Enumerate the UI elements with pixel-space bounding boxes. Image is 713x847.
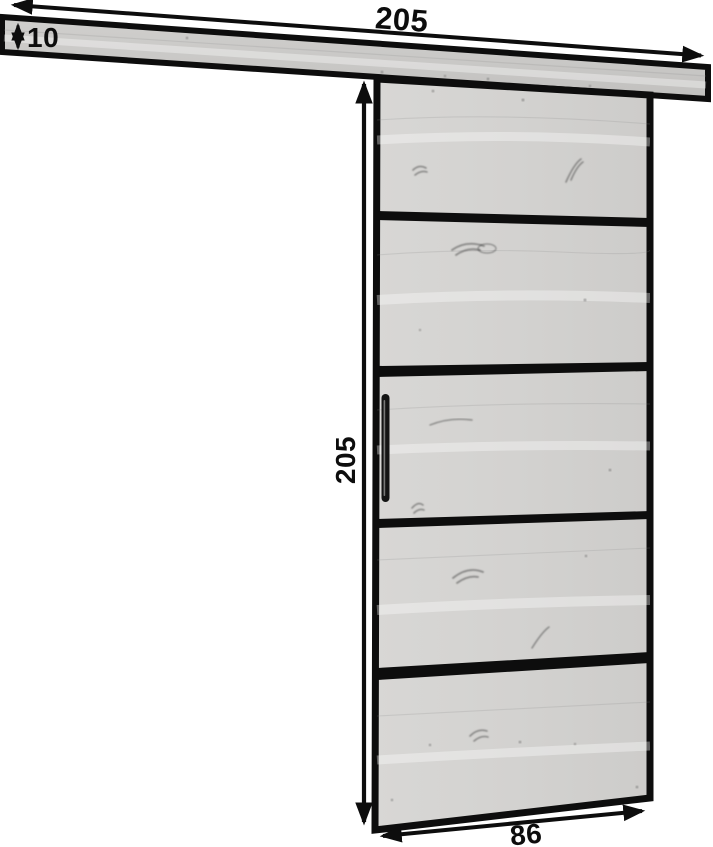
door-height-label: 205 [330, 436, 361, 484]
diagram-canvas: 205 10 205 86 [0, 0, 713, 847]
door-dimension-diagram: 205 10 205 86 [0, 0, 713, 847]
door-handle [382, 394, 390, 502]
door-width-label: 86 [509, 818, 544, 847]
rail-length-label: 205 [374, 0, 430, 39]
door-panel [375, 79, 650, 830]
door-height-dimension: 205 [330, 84, 364, 822]
rail-thickness-label: 10 [27, 22, 59, 53]
